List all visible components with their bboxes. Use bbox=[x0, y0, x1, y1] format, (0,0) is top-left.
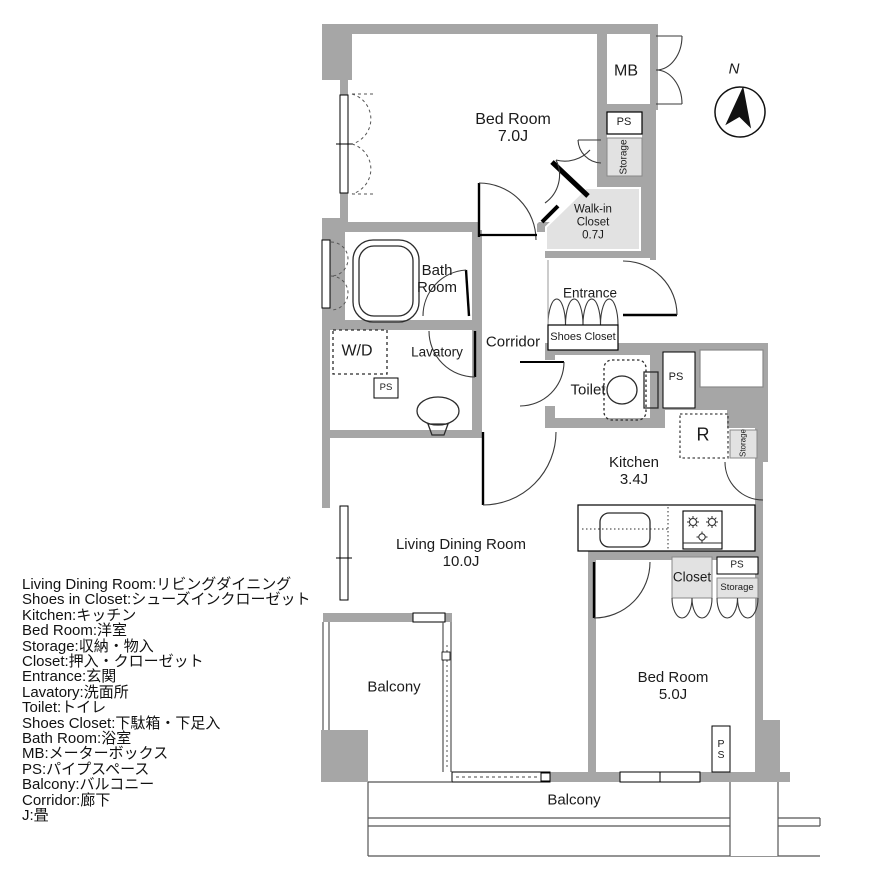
legend-item: Kitchen:キッチン bbox=[22, 608, 310, 623]
legend-item: Balcony:バルコニー bbox=[22, 777, 310, 792]
corridor-label: Corridor bbox=[486, 334, 540, 351]
legend-item: Corridor:廊下 bbox=[22, 793, 310, 808]
toilet-label: Toilet bbox=[570, 382, 605, 399]
lavatory-label: Lavatory bbox=[411, 345, 463, 360]
legend-item: Shoes Closet:下駄箱・下足入 bbox=[22, 716, 310, 731]
storage-closet-label: Storage bbox=[720, 583, 753, 593]
entrance-label: Entrance bbox=[563, 286, 617, 301]
mb-label: MB bbox=[614, 63, 638, 80]
bedroom2-label: Bed Room5.0J bbox=[638, 669, 709, 703]
ps-top-label: PS bbox=[617, 116, 632, 128]
balcony-left-label: Balcony bbox=[367, 679, 420, 696]
legend-item: PS:パイプスペース bbox=[22, 762, 310, 777]
bathroom-label: BathRoom bbox=[417, 262, 457, 296]
balcony-bottom-label: Balcony bbox=[547, 792, 600, 809]
legend-item: Lavatory:洗面所 bbox=[22, 685, 310, 700]
wd-label: W/D bbox=[341, 343, 372, 360]
shoes-closet-label: Shoes Closet bbox=[550, 331, 615, 343]
legend-item: Living Dining Room:リビングダイニング bbox=[22, 577, 310, 592]
legend: Living Dining Room:リビングダイニング Shoes in Cl… bbox=[22, 577, 310, 824]
ldk-label: Living Dining Room10.0J bbox=[396, 536, 526, 570]
closet-label: Closet bbox=[673, 570, 711, 585]
legend-item: Closet:押入・クローゼット bbox=[22, 654, 310, 669]
sliding-door-handle bbox=[541, 773, 550, 781]
compass-n-label: N bbox=[729, 61, 740, 78]
legend-item: J:畳 bbox=[22, 808, 310, 823]
ps-bottom-label: PS bbox=[716, 739, 727, 761]
kitchen-counter bbox=[578, 505, 755, 551]
legend-item: Bath Room:浴室 bbox=[22, 731, 310, 746]
storage-top-label: Storage bbox=[619, 139, 630, 174]
ps-closet-label: PS bbox=[730, 560, 743, 571]
legend-item: Storage:収納・物入 bbox=[22, 639, 310, 654]
kitchen-label: Kitchen3.4J bbox=[609, 454, 659, 488]
legend-item: MB:メーターボックス bbox=[22, 746, 310, 761]
legend-item: Entrance:玄関 bbox=[22, 669, 310, 684]
bedroom1-label: Bed Room7.0J bbox=[475, 111, 551, 145]
legend-item: Shoes in Closet:シューズインクローゼット bbox=[22, 592, 310, 607]
compass-icon bbox=[712, 83, 768, 140]
refrigerator-label: R bbox=[697, 427, 710, 444]
storage-kitchen-label: Storage bbox=[739, 429, 748, 457]
legend-item: Bed Room:洋室 bbox=[22, 623, 310, 638]
floorplan-page: Bed Room7.0J MB PS Storage Walk-inCloset… bbox=[0, 0, 872, 872]
ps-toilet-label: PS bbox=[669, 371, 684, 383]
walkin-closet-label: Walk-inCloset0.7J bbox=[574, 204, 612, 243]
ps-lavatory-label: PS bbox=[380, 383, 393, 393]
legend-item: Toilet:トイレ bbox=[22, 700, 310, 715]
